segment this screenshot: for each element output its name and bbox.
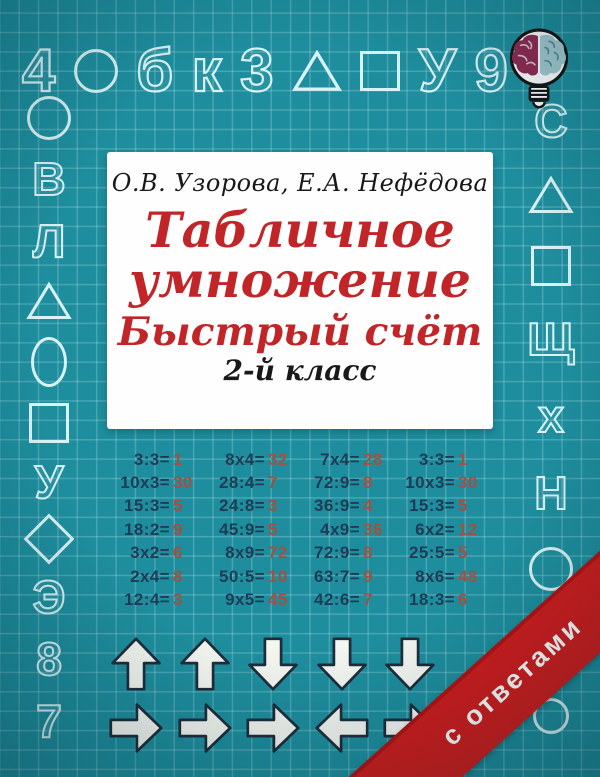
letter-glyph: 7	[36, 698, 62, 744]
equation-answer: 3	[265, 496, 298, 516]
equation-question: 15:3=	[112, 496, 170, 516]
equation-question: 10x3=	[112, 473, 170, 493]
equation-question: 72:9=	[302, 473, 360, 493]
equation-question: 18:2=	[112, 520, 170, 540]
equation-answer: 72	[265, 543, 298, 563]
letter-glyph: х	[538, 393, 564, 439]
equation-question: 3x2=	[112, 543, 170, 563]
title-line-1: Табличное	[107, 206, 493, 256]
arrow-right-icon	[108, 698, 164, 758]
equation-question: 72:9=	[302, 543, 360, 563]
letter-glyph: 8	[36, 636, 62, 682]
arrow-right-icon	[245, 698, 301, 758]
problems-column: 3:3=110x3=3015:3=56x2=1225:5=58x6=4818:3…	[397, 448, 488, 612]
equation: 36:9=4	[302, 495, 393, 518]
letter-glyph: Л	[33, 218, 65, 264]
equation-question: 24:8=	[207, 496, 265, 516]
equation: 3:3=1	[397, 448, 488, 471]
letter-glyph: б	[136, 41, 173, 101]
equation: 15:3=5	[397, 495, 488, 518]
equation: 12:4=3	[112, 588, 203, 611]
grade-label: 2-й класс	[107, 357, 493, 385]
equation: 28:4=7	[207, 471, 298, 494]
letter-glyph: 4	[22, 41, 55, 101]
arrow-down-icon	[382, 634, 438, 694]
equation: 6x2=12	[397, 518, 488, 541]
equation-answer: 7	[265, 473, 298, 493]
equation: 24:8=3	[207, 495, 298, 518]
letter-glyph: В	[32, 156, 65, 202]
equation-question: 6x2=	[397, 520, 455, 540]
equation-answer: 7	[360, 590, 393, 610]
equation-question: 12:4=	[112, 590, 170, 610]
equation-question: 2x4=	[112, 567, 170, 587]
equation-answer: 28	[360, 450, 393, 470]
equation-answer: 4	[360, 496, 393, 516]
arrow-down-icon	[314, 634, 370, 694]
equation-answer: 5	[455, 543, 488, 563]
equation-answer: 30	[170, 473, 203, 493]
equation-answer: 10	[265, 567, 298, 587]
triangle-shape	[26, 281, 72, 321]
equation-answer: 32	[265, 450, 298, 470]
equation: 18:2=9	[112, 518, 203, 541]
equation-answer: 8	[360, 473, 393, 493]
equation: 4x9=36	[302, 518, 393, 541]
equation-answer: 6	[170, 543, 203, 563]
book-cover: 4бк3У9 ВЛУЭ87 СЩхНр О.В. Узорова, Е.А. Н…	[0, 0, 600, 777]
arrow-up-icon	[177, 634, 233, 694]
bulb-tip	[533, 102, 544, 107]
equation: 15:3=5	[112, 495, 203, 518]
problems-column: 7x4=2872:9=836:9=44x9=3672:9=863:7=942:6…	[302, 448, 393, 612]
equation-answer: 9	[360, 567, 393, 587]
equation: 42:6=7	[302, 588, 393, 611]
arrow-down-icon	[245, 634, 301, 694]
circle-shape	[27, 96, 71, 140]
equation-question: 10x3=	[397, 473, 455, 493]
letter-glyph: 9	[475, 41, 508, 101]
equation: 45:9=5	[207, 518, 298, 541]
equation-answer: 45	[265, 590, 298, 610]
square-shape	[29, 403, 69, 443]
square-shape	[360, 51, 400, 91]
decorative-glyphs-left: ВЛУЭ87	[20, 96, 78, 744]
letter-glyph: У	[419, 41, 456, 101]
equation-question: 8x6=	[397, 567, 455, 587]
equation-answer: 8	[170, 567, 203, 587]
equation-question: 36:9=	[302, 496, 360, 516]
equation-question: 8x9=	[207, 543, 265, 563]
equation: 10x3=30	[112, 471, 203, 494]
letter-glyph: Щ	[528, 316, 575, 362]
equation-question: 4x9=	[302, 520, 360, 540]
equation-question: 42:6=	[302, 590, 360, 610]
equation: 8x6=48	[397, 565, 488, 588]
arrow-right-icon	[177, 698, 233, 758]
equation-answer: 8	[360, 543, 393, 563]
equation-answer: 5	[170, 496, 203, 516]
equation-question: 3:3=	[397, 450, 455, 470]
letter-glyph: к	[192, 41, 222, 101]
letter-glyph: 3	[240, 41, 273, 101]
equation: 72:9=8	[302, 542, 393, 565]
equation: 7x4=28	[302, 448, 393, 471]
triangle-shape	[528, 175, 574, 215]
equation-question: 45:9=	[207, 520, 265, 540]
equation-answer: 3	[170, 590, 203, 610]
letter-glyph: У	[35, 459, 64, 505]
equation-question: 15:3=	[397, 496, 455, 516]
equation-answer: 1	[455, 450, 488, 470]
equation-question: 50:5=	[207, 567, 265, 587]
equation-question: 63:7=	[302, 567, 360, 587]
equation: 2x4=8	[112, 565, 203, 588]
arrow-left-icon	[314, 698, 370, 758]
equation: 50:5=10	[207, 565, 298, 588]
brain-lightbulb-logo	[506, 27, 572, 123]
arrow-up-icon	[108, 634, 164, 694]
problems-column: 3:3=110x3=3015:3=518:2=93x2=62x4=812:4=3	[112, 448, 203, 612]
ellipse-shape	[31, 337, 67, 387]
arrows-row-1	[108, 633, 438, 695]
authors-line: О.В. Узорова, Е.А. Нефёдова	[107, 169, 493, 197]
equation: 8x9=72	[207, 542, 298, 565]
equation-question: 8x4=	[207, 450, 265, 470]
equation: 3:3=1	[112, 448, 203, 471]
equation-answer: 30	[455, 473, 488, 493]
triangle-shape	[292, 49, 342, 93]
equation-question: 3:3=	[112, 450, 170, 470]
equation: 25:5=5	[397, 542, 488, 565]
equation-answer: 5	[455, 496, 488, 516]
equation-question: 7x4=	[302, 450, 360, 470]
title-line-2: умножение	[107, 256, 493, 306]
brain-in-lightbulb-icon	[506, 27, 572, 123]
title-card: О.В. Узорова, Е.А. Нефёдова Табличное ум…	[107, 152, 493, 429]
equation-question: 28:4=	[207, 473, 265, 493]
equation-answer: 9	[170, 520, 203, 540]
equation-answer: 12	[455, 520, 488, 540]
equation: 72:9=8	[302, 471, 393, 494]
decorative-glyphs-top: 4бк3У9	[22, 34, 508, 108]
square-shape	[531, 246, 571, 286]
equation: 8x4=32	[207, 448, 298, 471]
equation: 18:3=6	[397, 588, 488, 611]
equation-question: 18:3=	[397, 590, 455, 610]
equation-question: 25:5=	[397, 543, 455, 563]
equation-question: 9x5=	[207, 590, 265, 610]
equation: 3x2=6	[112, 542, 203, 565]
circle-shape	[74, 49, 118, 93]
subtitle: Быстрый счёт	[107, 313, 493, 352]
equation: 63:7=9	[302, 565, 393, 588]
letter-glyph: Н	[534, 470, 567, 516]
multiplication-problems-table: 3:3=110x3=3015:3=518:2=93x2=62x4=812:4=3…	[112, 448, 488, 612]
equation-answer: 6	[455, 590, 488, 610]
equation-answer: 1	[170, 450, 203, 470]
problems-column: 8x4=3228:4=724:8=345:9=58x9=7250:5=109x5…	[207, 448, 298, 612]
letter-glyph: Э	[33, 574, 66, 620]
equation: 9x5=45	[207, 588, 298, 611]
equation: 10x3=30	[397, 471, 488, 494]
equation-answer: 5	[265, 520, 298, 540]
equation-answer: 48	[455, 567, 488, 587]
diamond-shape	[24, 514, 75, 565]
equation-answer: 36	[360, 520, 393, 540]
